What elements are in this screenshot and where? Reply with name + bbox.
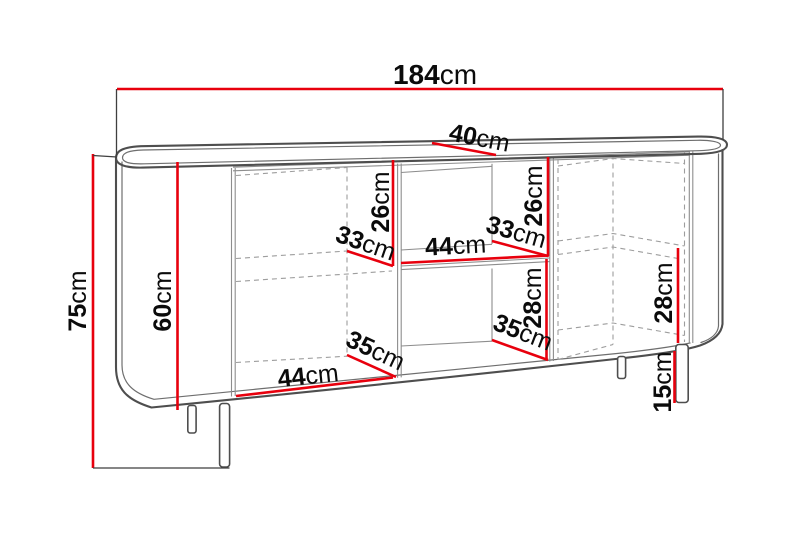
right-shelf-bottom-edge-dashed — [558, 247, 678, 259]
cabinet-legs — [188, 345, 688, 468]
leg-back-right — [618, 357, 626, 379]
cabinet-body-inner-line — [122, 162, 690, 399]
label-left-upper-height: 26cm — [367, 171, 395, 232]
dimension-labels: 184cm 40cm 75cm 60cm 26cm 33cm 44cm 33cm… — [64, 59, 678, 413]
cabinet-body — [116, 150, 723, 408]
label-overall-width: 184cm — [393, 59, 477, 90]
middle-upper-back-top-edge — [401, 166, 492, 172]
right-shelf-top-edge-dashed — [558, 234, 685, 247]
label-middle-upper-height: 26cm — [520, 165, 548, 226]
cabinet-body-outline — [116, 150, 723, 408]
height-extension-top — [93, 156, 117, 158]
right-floor-back-edge-dashed — [558, 323, 685, 336]
middle-floor-back-edge — [401, 341, 492, 346]
label-overall-height: 75cm — [64, 270, 92, 331]
cabinet-right-inner-line — [701, 154, 719, 343]
cabinet-top-panel — [116, 137, 727, 168]
label-left-lower-width: 44cm — [276, 359, 340, 393]
leg-back-left — [188, 406, 196, 434]
label-right-lower-height: 28cm — [650, 262, 678, 323]
label-leg-height: 15cm — [649, 351, 677, 412]
dimension-diagram: 184cm 40cm 75cm 60cm 26cm 33cm 44cm 33cm… — [0, 0, 800, 533]
label-overall-depth: 40cm — [447, 119, 512, 158]
left-shelf-back-edge-dashed — [236, 251, 347, 259]
right-floor-side-edge-dashed — [558, 345, 613, 360]
leg-front-left — [220, 404, 230, 468]
right-ceiling-back-edge-dashed — [558, 159, 685, 167]
drawing-canvas: 184cm 40cm 75cm 60cm 26cm 33cm 44cm 33cm… — [0, 0, 800, 533]
leg-front-right — [676, 345, 688, 403]
label-middle-shelf-width: 44cm — [424, 230, 487, 261]
left-shelf-front-edge-dashed — [236, 271, 392, 282]
label-body-height: 60cm — [149, 270, 177, 331]
